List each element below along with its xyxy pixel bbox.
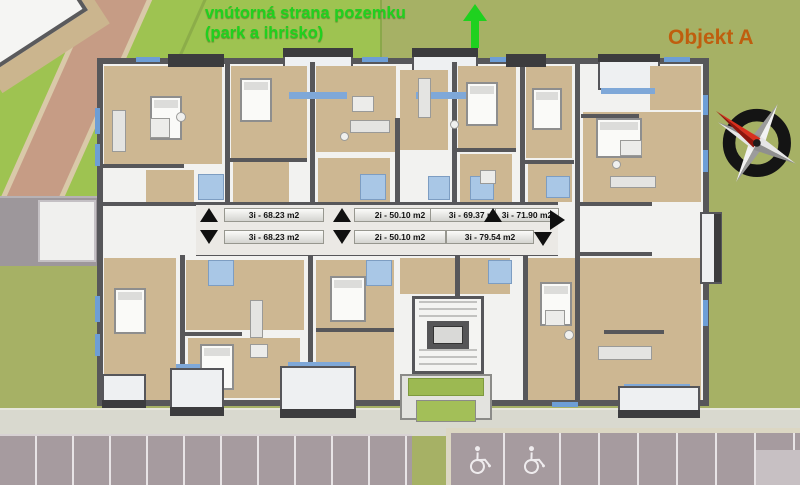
site-direction-arrow-stem xyxy=(471,19,479,48)
parking-lot-left xyxy=(0,434,412,485)
roof-planter xyxy=(168,54,224,67)
entrance-step-green xyxy=(416,400,476,422)
unit-arrow-up-icon xyxy=(333,208,351,222)
entrance-porch-green xyxy=(408,378,484,396)
elevator xyxy=(427,321,469,349)
stair-steps xyxy=(419,349,477,369)
staircase xyxy=(412,296,484,374)
unit-arrow-up-icon xyxy=(200,208,218,222)
balcony-planter xyxy=(170,407,224,416)
unit-arrow-up-icon xyxy=(484,208,502,222)
neighbor-structure-panel xyxy=(38,200,96,262)
elevator-cab xyxy=(433,326,463,344)
unit-arrow-down-icon xyxy=(333,230,351,244)
unit-label: 3i - 68.23 m2 xyxy=(224,230,324,244)
building-name: Objekt A xyxy=(668,26,754,50)
balcony-planter xyxy=(412,48,478,57)
corner-ramp xyxy=(756,450,800,485)
balcony-planter xyxy=(283,48,353,57)
balcony-planter xyxy=(714,214,721,282)
balcony-planter xyxy=(280,409,356,418)
compass-icon xyxy=(706,86,800,198)
roof-planter xyxy=(506,54,546,67)
site-plan: 3i - 68.23 m2 2i - 50.10 m2 3i - 69.37 m… xyxy=(0,0,800,485)
site-note-line1: vnútorná strana pozemku xyxy=(205,4,406,24)
unit-arrow-down-icon xyxy=(534,232,552,246)
parking-lot-right xyxy=(446,428,800,485)
parking-divider xyxy=(503,433,505,485)
stair-steps xyxy=(419,301,477,321)
site-note: vnútorná strana pozemku (park a ihrisko) xyxy=(205,4,406,44)
wheelchair-icon xyxy=(517,443,547,477)
balcony-planter xyxy=(598,54,660,62)
unit-label: 2i - 50.10 m2 xyxy=(354,230,446,244)
unit-arrow-down-icon xyxy=(200,230,218,244)
wheelchair-icon xyxy=(463,443,493,477)
balcony-planter xyxy=(102,400,146,408)
site-note-line2: (park a ihrisko) xyxy=(205,24,406,44)
unit-arrow-right-icon xyxy=(550,210,565,230)
unit-label: 3i - 68.23 m2 xyxy=(224,208,324,222)
balcony-planter xyxy=(618,410,700,418)
unit-label: 3i - 79.54 m2 xyxy=(446,230,534,244)
